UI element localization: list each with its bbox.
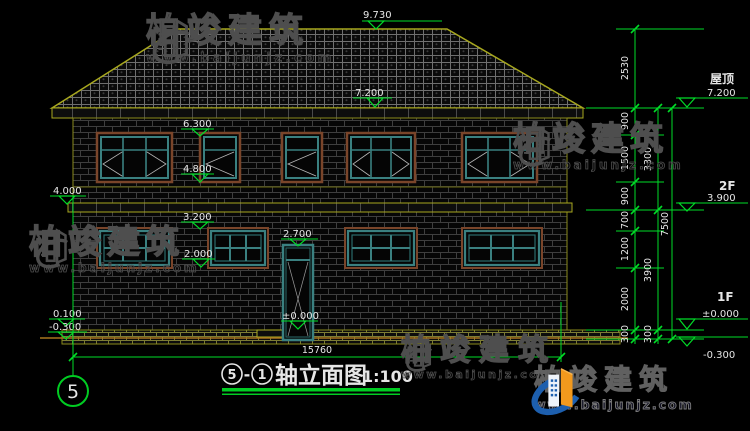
cad-canvas: 9.730 7.200 6.300 4.800 4.000 3.200 bbox=[0, 0, 750, 431]
plinth bbox=[62, 330, 620, 344]
title-bubble-right: 1 bbox=[257, 368, 266, 383]
svg-text:2.000: 2.000 bbox=[184, 249, 213, 260]
window-1f-3 bbox=[345, 228, 417, 268]
window-2f-3 bbox=[282, 133, 322, 182]
svg-text:7.200: 7.200 bbox=[355, 88, 384, 99]
svg-text:3.200: 3.200 bbox=[183, 212, 212, 223]
elevation-drawing: 9.730 7.200 6.300 4.800 4.000 3.200 bbox=[0, 0, 750, 431]
title-bubble-left: 5 bbox=[227, 368, 236, 383]
window-1f-4 bbox=[462, 228, 542, 268]
svg-text:5: 5 bbox=[67, 381, 79, 403]
ground-level: -0.300 bbox=[703, 350, 735, 361]
svg-text:±0.000: ±0.000 bbox=[282, 311, 319, 322]
dim-c1-2: 1500 bbox=[620, 146, 631, 170]
roof-name: 屋顶 bbox=[710, 72, 734, 86]
svg-text:4.800: 4.800 bbox=[183, 164, 212, 175]
f1-name: 1F bbox=[717, 290, 734, 304]
roof-level: 7.200 bbox=[707, 88, 736, 99]
dim-c2-2: 300 bbox=[643, 325, 654, 343]
title-text: 轴立面图 bbox=[275, 362, 367, 389]
title-separator: - bbox=[244, 365, 251, 384]
dim-c1-3: 900 bbox=[620, 187, 631, 205]
svg-text:9.730: 9.730 bbox=[363, 10, 392, 21]
window-2f-1 bbox=[97, 133, 172, 182]
dim-c1-7: 300 bbox=[620, 325, 631, 343]
title-scale: 1:100 bbox=[362, 367, 413, 386]
dim-c1-1: 900 bbox=[620, 112, 631, 130]
svg-text:2.700: 2.700 bbox=[283, 229, 312, 240]
f2-name: 2F bbox=[719, 179, 736, 193]
dim-c1-6: 2000 bbox=[620, 287, 631, 311]
drawing-title: 5 - 1 轴立面图 1:100 bbox=[222, 362, 413, 395]
dim-c2-1: 3900 bbox=[643, 258, 654, 282]
level-ridge: 9.730 bbox=[362, 10, 442, 29]
dim-c1-0: 2530 bbox=[620, 56, 631, 80]
entry-door bbox=[283, 245, 313, 340]
building-elevation bbox=[40, 29, 628, 344]
svg-text:4.000: 4.000 bbox=[53, 186, 82, 197]
window-2f-4 bbox=[347, 133, 415, 182]
dim-c1-5: 1200 bbox=[620, 237, 631, 261]
svg-text:0.100: 0.100 bbox=[53, 309, 82, 320]
f1-level: ±0.000 bbox=[702, 309, 739, 320]
eaves-fascia bbox=[52, 108, 583, 118]
total-width-label: 15760 bbox=[302, 345, 332, 356]
svg-text:6.300: 6.300 bbox=[183, 119, 212, 130]
dim-c1-4: 700 bbox=[620, 211, 631, 229]
window-1f-2 bbox=[208, 228, 268, 268]
dim-c2-0: 3300 bbox=[643, 147, 654, 171]
roof bbox=[52, 29, 583, 108]
floor-level-labels: 屋顶 7.200 2F 3.900 1F ±0.000 -0.300 bbox=[676, 72, 748, 361]
svg-text:-0.300: -0.300 bbox=[49, 322, 81, 333]
floor-belt bbox=[68, 203, 572, 212]
window-1f-1 bbox=[97, 228, 172, 268]
f2-level: 3.900 bbox=[707, 193, 736, 204]
dimension-chains: 2530 900 1500 900 700 1200 2000 300 3300… bbox=[586, 25, 704, 344]
axis-bubble-5: 5 bbox=[58, 376, 88, 406]
window-2f-5 bbox=[462, 133, 537, 182]
dim-c3-0: 7500 bbox=[660, 212, 671, 236]
